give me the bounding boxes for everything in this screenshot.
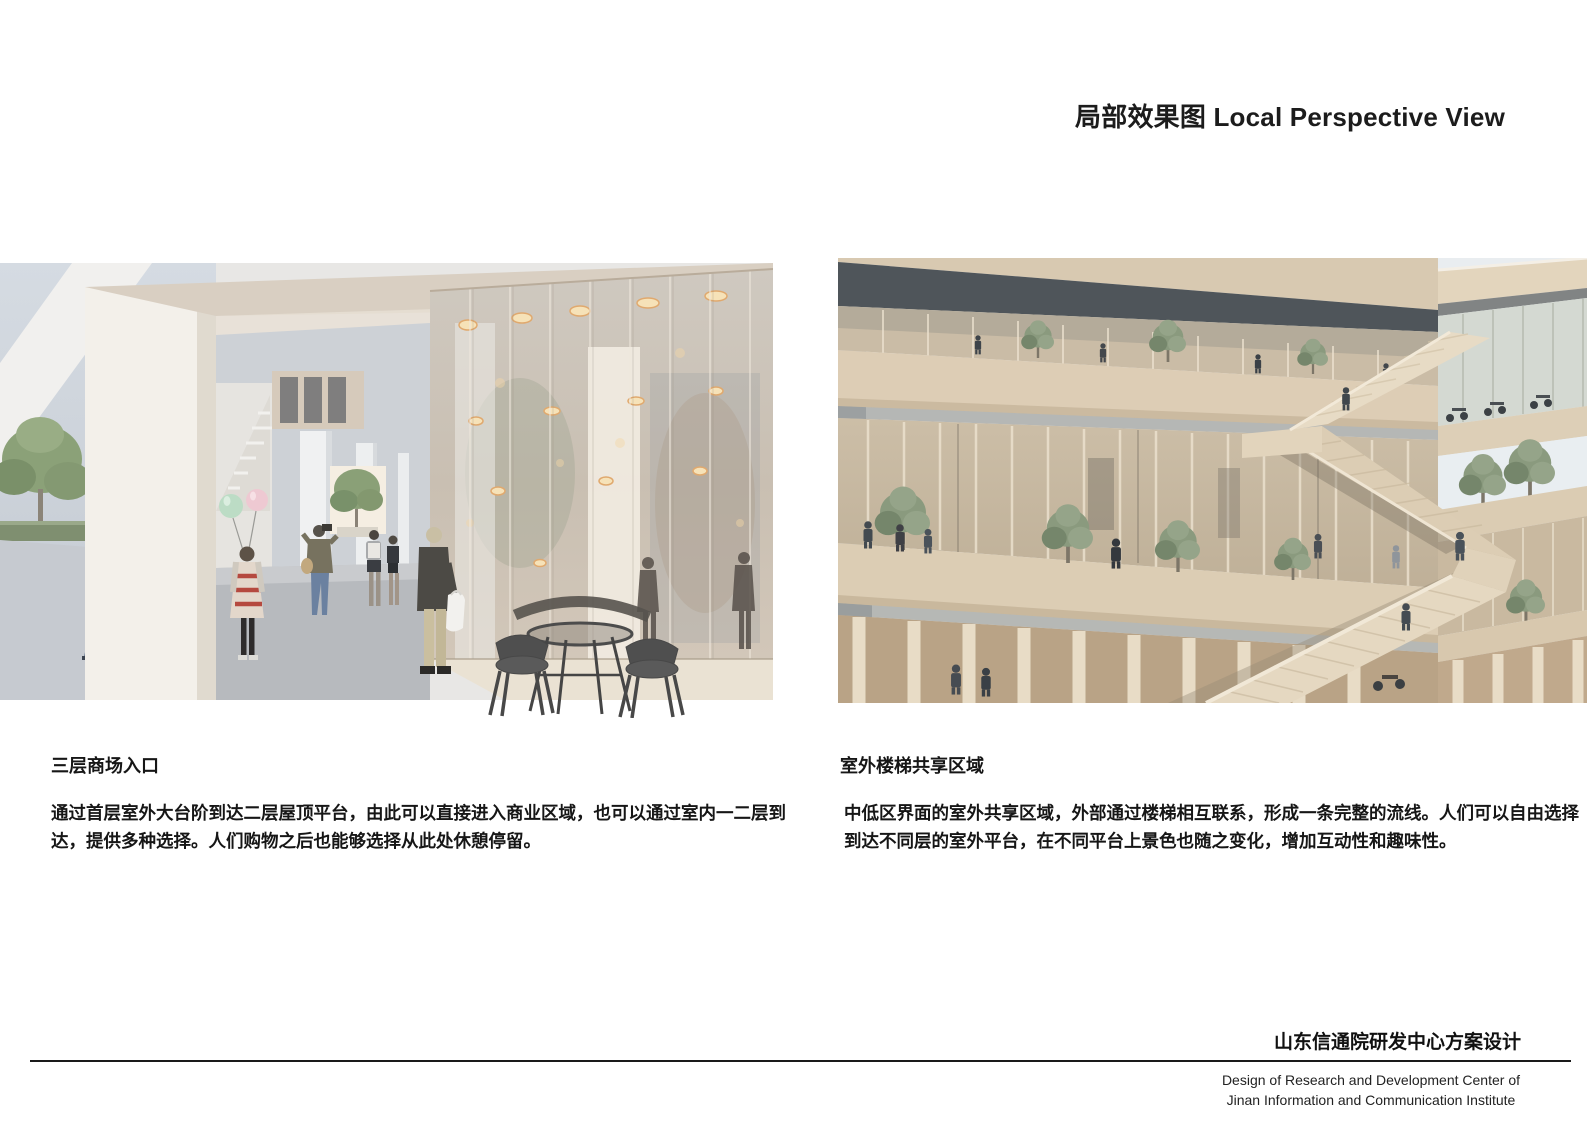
left-description-line-2: 达，提供多种选择。人们购物之后也能够选择从此处休憩停留。 <box>51 827 771 855</box>
footer-divider-line <box>30 1060 1571 1062</box>
right-description-line-2: 到达不同层的室外平台，在不同平台上景色也随之变化，增加互动性和趣味性。 <box>844 827 1564 855</box>
project-title-zh: 山东信通院研发中心方案设计 <box>1274 1027 1521 1054</box>
right-description-line-1: 中低区界面的室外共享区域，外部通过楼梯相互联系，形成一条完整的流线。人们可以自由… <box>844 799 1564 827</box>
page-title: 局部效果图 Local Perspective View <box>1075 97 1505 134</box>
left-description-line-1: 通过首层室外大台阶到达二层屋顶平台，由此可以直接进入商业区域，也可以通过室内一二… <box>51 799 771 827</box>
left-rendering-mall-entrance <box>0 263 773 718</box>
project-title-en-line-1: Design of Research and Development Cente… <box>1222 1070 1520 1090</box>
left-panel-caption: 三层商场入口 <box>51 752 159 778</box>
project-title-en: Design of Research and Development Cente… <box>1222 1070 1520 1110</box>
right-rendering-outdoor-stairs <box>838 258 1587 703</box>
right-panel-caption: 室外楼梯共享区域 <box>840 752 984 778</box>
project-title-en-line-2: Jinan Information and Communication Inst… <box>1222 1090 1520 1110</box>
outdoor-stairs-illustration <box>838 258 1587 703</box>
mall-entrance-illustration <box>0 263 773 718</box>
left-panel-description: 通过首层室外大台阶到达二层屋顶平台，由此可以直接进入商业区域，也可以通过室内一二… <box>51 799 771 855</box>
right-panel-description: 中低区界面的室外共享区域，外部通过楼梯相互联系，形成一条完整的流线。人们可以自由… <box>844 799 1564 855</box>
